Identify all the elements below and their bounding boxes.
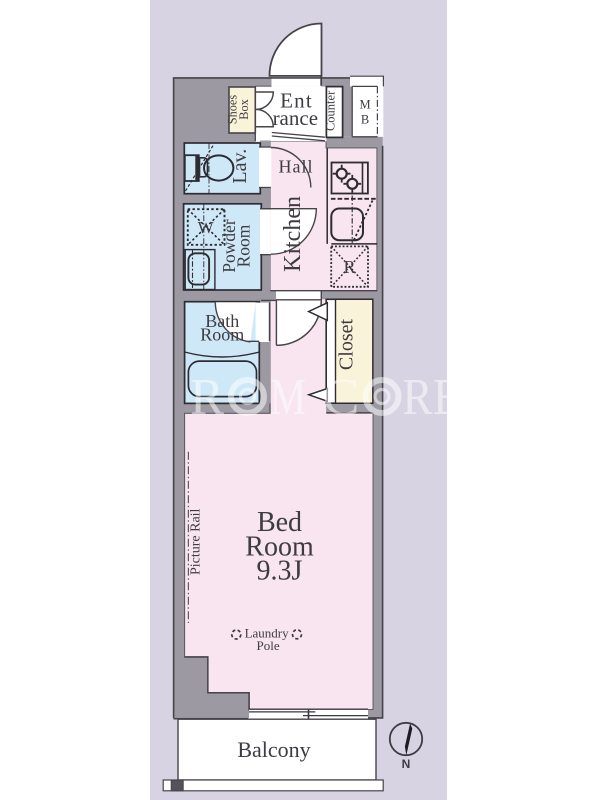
svg-text:N: N <box>402 757 411 771</box>
svg-text:Room: Room <box>200 324 244 344</box>
svg-text:M: M <box>270 369 306 426</box>
svg-text:Hall: Hall <box>279 156 314 176</box>
svg-text:Pole: Pole <box>257 638 280 653</box>
svg-text:M: M <box>359 97 370 111</box>
svg-text:C: C <box>323 369 360 426</box>
svg-text:Picture Rail: Picture Rail <box>189 508 204 575</box>
svg-text:R: R <box>403 369 433 426</box>
svg-text:Lav.: Lav. <box>229 149 251 184</box>
svg-text:9.3J: 9.3J <box>257 556 303 587</box>
svg-text:B: B <box>361 113 369 127</box>
svg-text:E: E <box>433 369 461 426</box>
svg-text:Room: Room <box>233 224 253 267</box>
svg-text:rance: rance <box>273 106 318 130</box>
svg-text:Box: Box <box>237 99 251 120</box>
svg-text:R: R <box>190 369 224 426</box>
svg-text:R: R <box>343 257 355 277</box>
svg-text:Counter: Counter <box>324 90 338 131</box>
svg-text:Kitchen: Kitchen <box>280 196 306 272</box>
svg-text:Closet: Closet <box>336 319 358 371</box>
svg-text:Balcony: Balcony <box>237 737 310 762</box>
svg-text:W: W <box>198 218 215 237</box>
